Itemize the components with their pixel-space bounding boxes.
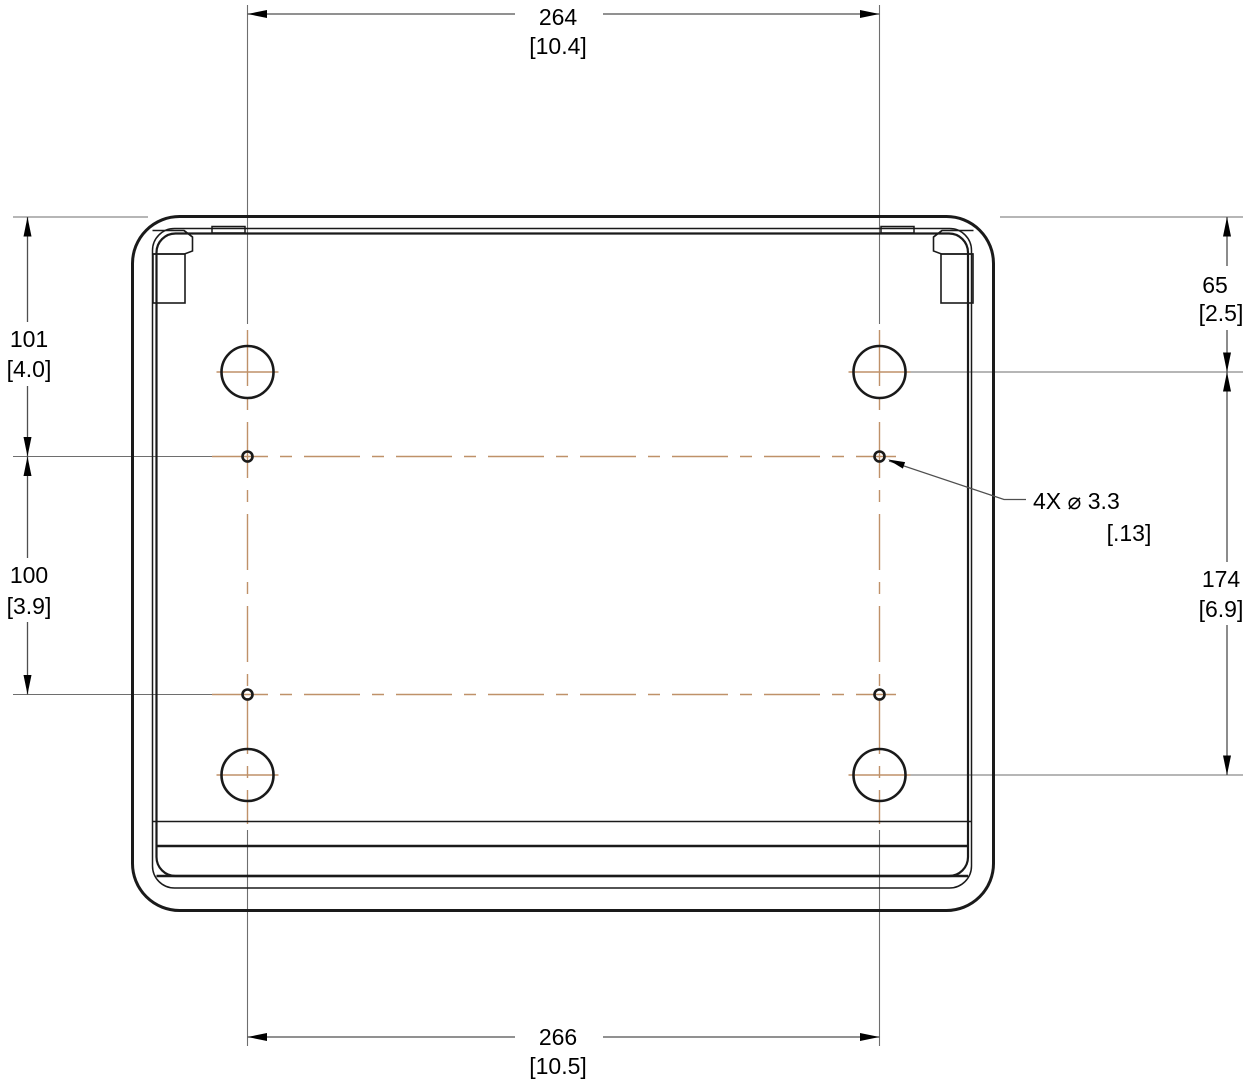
dim-left-upper-in-label: [4.0]	[7, 356, 52, 382]
dim-left-lower-mm-label: 100	[10, 562, 48, 588]
corner-boss-top-left	[153, 231, 193, 304]
enclosure-outline	[133, 217, 994, 911]
enclosure-outer-edge	[133, 217, 994, 911]
dim-right-lower-in-label: [6.9]	[1199, 596, 1244, 622]
arrowhead	[24, 457, 32, 477]
dimension-left-upper: 101 [4.0]	[7, 217, 52, 457]
hole-callout: 4X ⌀ 3.3 [.13]	[888, 460, 1151, 547]
dimension-bottom-width: 266 [10.5]	[248, 1024, 880, 1079]
corner-screw-holes	[222, 346, 906, 801]
mounting-holes	[243, 452, 885, 700]
corner-boss-lower-face	[153, 254, 185, 303]
top-edge-tab-left	[212, 227, 245, 234]
arrowhead	[248, 10, 268, 18]
hole-callout-label: 4X ⌀ 3.3	[1033, 488, 1120, 514]
dim-bottom-mm-label: 266	[539, 1024, 577, 1050]
enclosure-inner-edge	[153, 229, 972, 889]
drawing-page: 264 [10.4] 266 [10.5] 101 [4.0] 100 [3.9…	[0, 0, 1246, 1080]
arrowhead	[24, 217, 32, 237]
top-edge-tab-right	[881, 227, 914, 234]
dim-right-upper-in-label: [2.5]	[1199, 300, 1244, 326]
arrowhead	[860, 1033, 880, 1041]
extension-lines	[13, 5, 1243, 1046]
enclosure-inner-wall	[157, 234, 969, 877]
dim-right-lower-mm-label: 174	[1202, 566, 1241, 592]
arrowhead	[1223, 372, 1231, 392]
dim-left-lower-in-label: [3.9]	[7, 593, 52, 619]
dim-right-upper-mm-label: 65	[1202, 272, 1228, 298]
arrowhead	[24, 437, 32, 457]
arrowhead	[248, 1033, 268, 1041]
hole-callout-in-label: [.13]	[1107, 520, 1152, 546]
dimension-top-width: 264 [10.4]	[248, 4, 880, 59]
dim-left-upper-mm-label: 101	[10, 326, 48, 352]
dim-bottom-in-label: [10.5]	[529, 1053, 587, 1079]
arrowhead	[1223, 353, 1231, 373]
dimension-left-lower: 100 [3.9]	[7, 457, 622, 695]
arrowhead	[1223, 756, 1231, 776]
dimension-right-upper: 65 [2.5]	[1199, 217, 1244, 372]
arrowhead	[860, 10, 880, 18]
centerlines	[212, 330, 911, 824]
arrowhead	[1223, 217, 1231, 237]
drawing-canvas: 264 [10.4] 266 [10.5] 101 [4.0] 100 [3.9…	[0, 0, 1246, 1080]
arrowhead	[24, 675, 32, 695]
dim-top-mm-label: 264	[539, 4, 578, 30]
dim-top-in-label: [10.4]	[529, 33, 587, 59]
dimension-right-lower: 174 [6.9]	[1199, 372, 1244, 775]
leader-arrowhead	[888, 460, 905, 469]
leader-line	[889, 461, 1026, 500]
